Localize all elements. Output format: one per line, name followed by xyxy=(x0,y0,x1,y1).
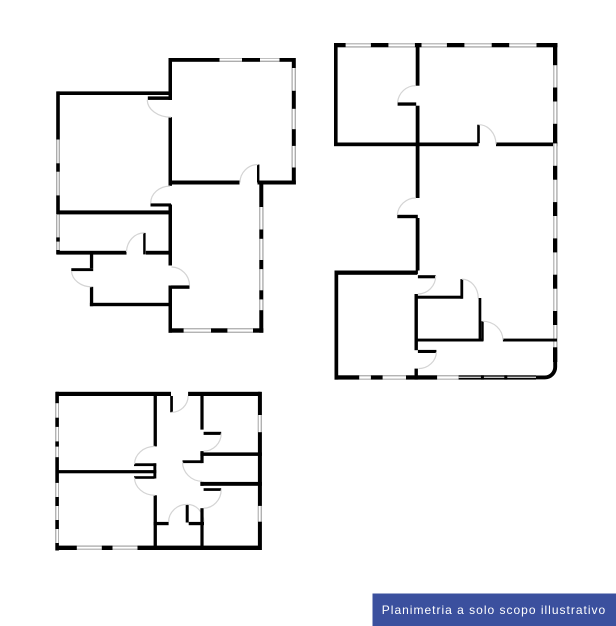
svg-text:Planimetria a solo scopo illus: Planimetria a solo scopo illustrativo xyxy=(382,603,606,617)
